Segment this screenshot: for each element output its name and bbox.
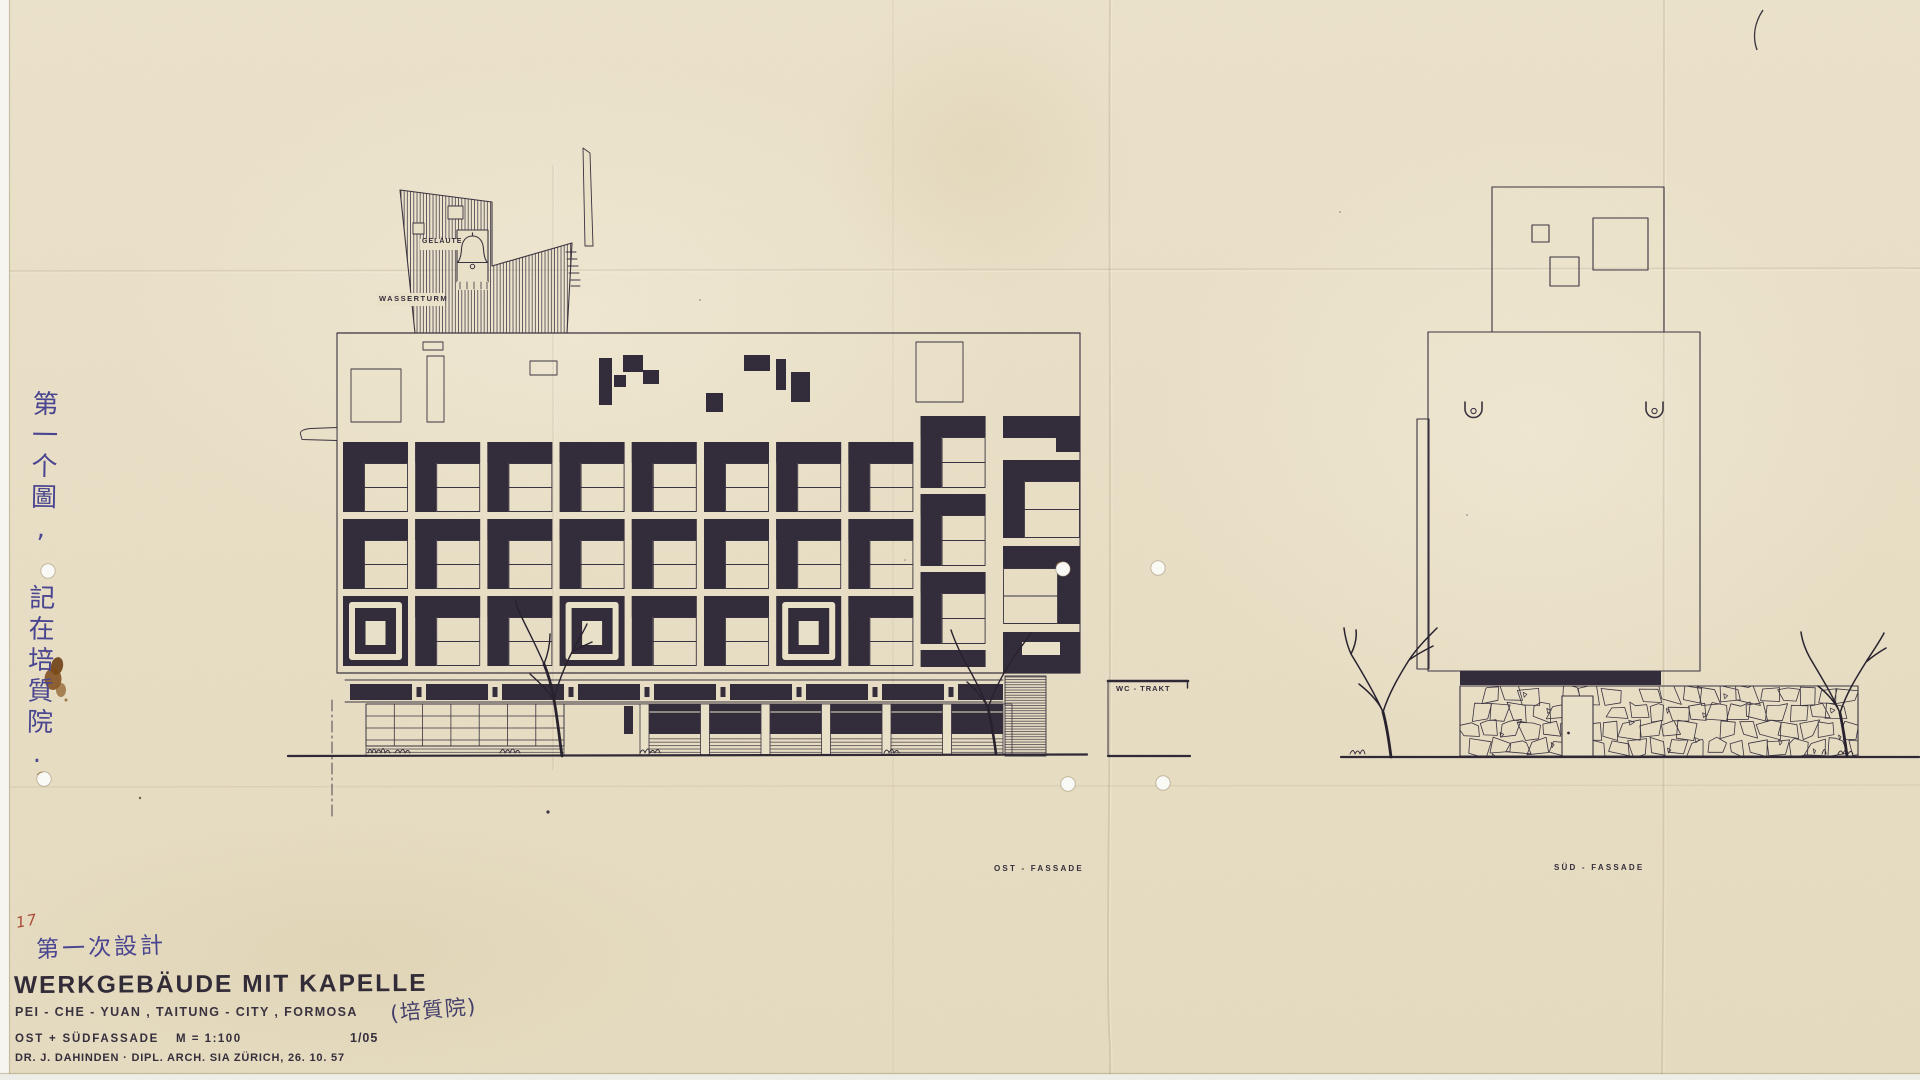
sheet-ref: 1/05	[350, 1031, 378, 1045]
side-note-vertical: 第一个圖, 記在培質院.	[19, 390, 63, 775]
ground-line-east	[288, 755, 1087, 757]
scale-value: M = 1:100	[176, 1033, 242, 1045]
punch-hole	[1061, 777, 1075, 791]
water-tower-label: WASSERTURM	[379, 294, 448, 303]
drawing-title: WERKGEBÄUDE MIT KAPELLE	[14, 970, 428, 1000]
canopy-fin	[300, 428, 337, 441]
bell-label: GELÄUTE	[422, 238, 462, 245]
paper-background	[0, 0, 1920, 1080]
door	[1562, 696, 1593, 756]
punch-hole	[1056, 562, 1070, 576]
punch-hole	[1151, 561, 1165, 575]
first-design-note: 第一次設計	[35, 926, 166, 965]
sheet-number-note: 17	[15, 910, 40, 932]
elevation-drawing-canvas	[0, 0, 1920, 1080]
scanned-drawing-sheet: GELÄUTE WASSERTURM WC - TRAKT OST - FASS…	[0, 0, 1920, 1080]
shadow-band	[1460, 671, 1661, 685]
drawing-location: PEI - CHE - YUAN , TAITUNG - CITY , FORM…	[15, 1005, 358, 1019]
facade-scale-line: OST + SÜDFASSADE	[15, 1033, 159, 1045]
punch-hole	[1156, 776, 1170, 790]
east-facade-label: OST - FASSADE	[994, 864, 1084, 873]
wc-trakt-label: WC - TRAKT	[1116, 684, 1171, 693]
architect-line: DR. J. DAHINDEN · DIPL. ARCH. SIA ZÜRICH…	[15, 1052, 345, 1064]
south-facade-label: SÜD - FASSADE	[1554, 863, 1644, 872]
